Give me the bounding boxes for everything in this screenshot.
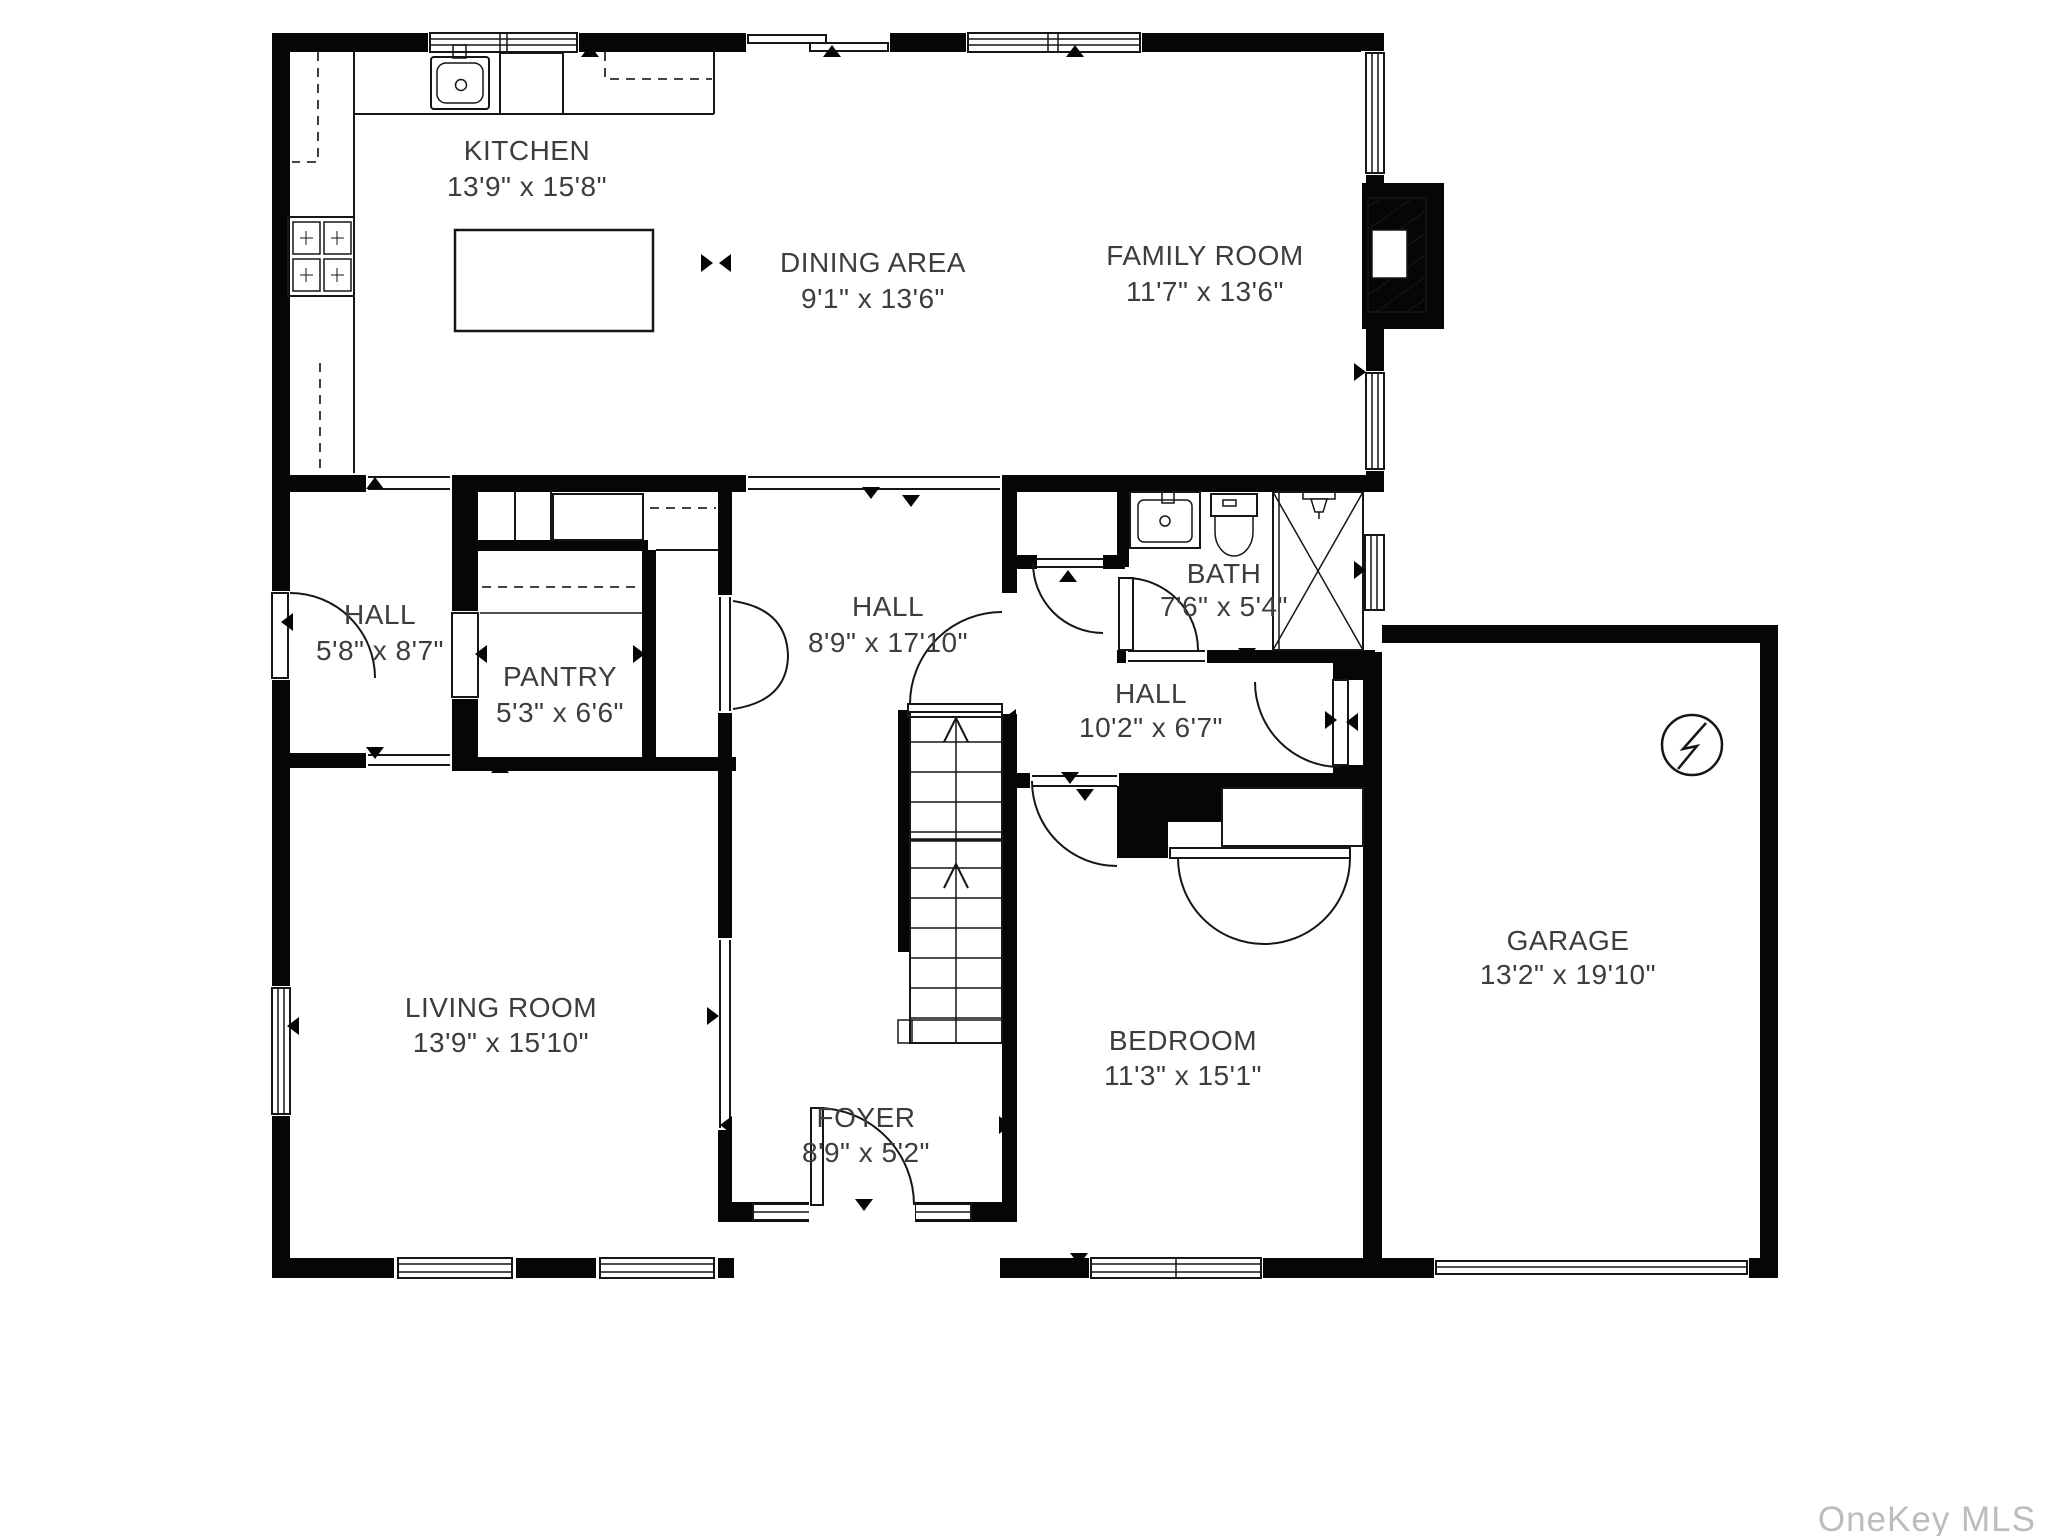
- watermark: OneKey MLS: [1818, 1500, 2036, 1536]
- chimney-flue: [1372, 230, 1407, 278]
- room-name: BATH: [1187, 558, 1262, 589]
- room-label-bedroom: BEDROOM 11'3" x 15'1": [1104, 1025, 1262, 1091]
- room-dims: 5'8" x 8'7": [316, 635, 444, 666]
- room-label-hall-left: HALL 5'8" x 8'7": [316, 599, 444, 666]
- window-living-bottom-1: [394, 1254, 516, 1282]
- door-hall-garage: [1255, 680, 1348, 767]
- pantry-area: [480, 492, 718, 613]
- drain: [456, 80, 467, 91]
- room-dims: 9'1" x 13'6": [801, 283, 945, 314]
- garage-door: [1434, 1256, 1749, 1280]
- room-dims: 13'2" x 19'10": [1480, 959, 1656, 990]
- room-name: LIVING ROOM: [405, 992, 597, 1023]
- refrigerator: [500, 53, 563, 114]
- room-name: KITCHEN: [464, 135, 590, 166]
- toilet: [1211, 494, 1257, 556]
- room-dims: 11'3" x 15'1": [1104, 1060, 1262, 1091]
- stairs: [898, 712, 1002, 1043]
- floor-plan-page: KITCHEN 13'9" x 15'8" DINING AREA 9'1" x…: [0, 0, 2048, 1536]
- room-name: DINING AREA: [780, 247, 966, 278]
- room-dims: 8'9" x 17'10": [808, 627, 968, 658]
- shower-bar: [1303, 492, 1335, 499]
- window-bedroom-bottom: [1089, 1254, 1263, 1282]
- range-cooktop: [288, 217, 354, 296]
- shower: [1273, 492, 1363, 650]
- room-label-pantry: PANTRY 5'3" x 6'6": [496, 661, 624, 728]
- room-label-garage: GARAGE 13'2" x 19'10": [1480, 925, 1656, 990]
- door-bedroom: [1030, 771, 1119, 866]
- room-label-hall-center: HALL 8'9" x 17'10": [808, 591, 968, 658]
- shower-head: [1311, 499, 1327, 512]
- double-doors-hall-closet: [716, 595, 788, 713]
- room-label-kitchen: KITCHEN 13'9" x 15'8": [447, 135, 607, 202]
- room-dims: 13'9" x 15'8": [447, 171, 607, 202]
- room-label-bath: BATH 7'6" x 5'4": [1160, 558, 1288, 622]
- room-dims: 8'9" x 5'2": [802, 1137, 930, 1168]
- room-name: BEDROOM: [1109, 1025, 1257, 1056]
- window-bath-right: [1361, 533, 1387, 612]
- chimney: [1362, 183, 1444, 329]
- opening-living-hallcenter: [716, 938, 734, 1130]
- room-name: HALL: [852, 591, 924, 622]
- room-dims: 10'2" x 6'7": [1079, 712, 1223, 743]
- door-pantry: [450, 611, 480, 699]
- window-dining-top: [966, 29, 1142, 56]
- room-name: PANTRY: [503, 661, 617, 692]
- window-family-right-upper: [1361, 51, 1387, 175]
- room-name: GARAGE: [1507, 925, 1630, 956]
- room-dims: 13'9" x 15'10": [413, 1027, 589, 1058]
- kitchen-fixtures: [288, 45, 714, 473]
- room-name: HALL: [1115, 678, 1187, 709]
- bath-vanity: [1130, 492, 1200, 548]
- foyer-sidelight-left: [753, 1204, 811, 1220]
- foyer-sidelight-right: [915, 1204, 971, 1220]
- room-label-dining-area: DINING AREA 9'1" x 13'6": [780, 247, 966, 314]
- room-dims: 7'6" x 5'4": [1160, 591, 1288, 622]
- room-label-hall-right: HALL 10'2" x 6'7": [1079, 678, 1223, 743]
- exterior-walls: [272, 33, 1778, 1278]
- window-kitchen-top: [428, 29, 579, 56]
- floor-plan: KITCHEN 13'9" x 15'8" DINING AREA 9'1" x…: [0, 0, 2048, 1536]
- bedroom-closet: [1117, 786, 1363, 944]
- room-name: FOYER: [817, 1102, 916, 1133]
- garage-light-icon: [1662, 715, 1722, 775]
- room-name: FAMILY ROOM: [1106, 240, 1303, 271]
- sliding-door-top: [746, 31, 890, 55]
- room-label-living-room: LIVING ROOM 13'9" x 15'10": [405, 992, 597, 1058]
- kitchen-island: [455, 230, 653, 331]
- room-label-family-room: FAMILY ROOM 11'7" x 13'6": [1106, 240, 1303, 307]
- opening-hall-living: [366, 751, 452, 770]
- room-dims: 11'7" x 13'6": [1126, 276, 1284, 307]
- room-dims: 5'3" x 6'6": [496, 697, 624, 728]
- laundry-appliance: [553, 494, 643, 540]
- window-family-right-lower: [1361, 371, 1387, 471]
- window-living-left: [268, 986, 294, 1116]
- room-name: HALL: [344, 599, 416, 630]
- window-living-bottom-2: [596, 1254, 718, 1282]
